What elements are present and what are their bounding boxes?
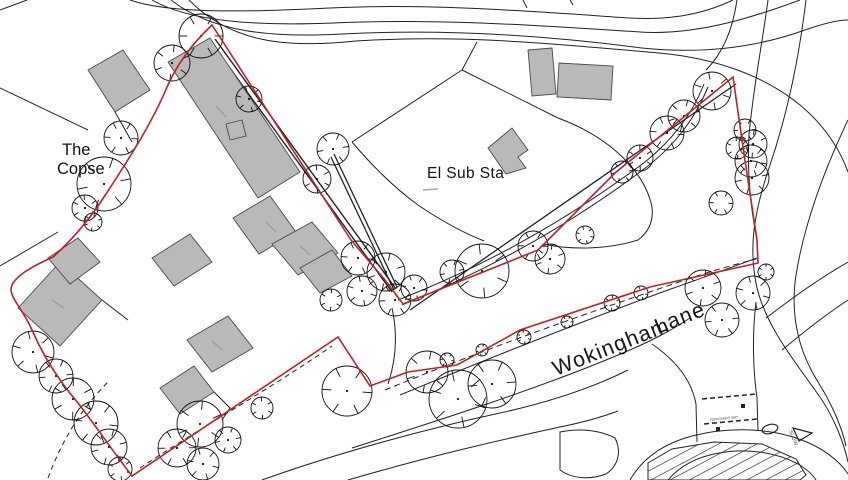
tree-symbol — [736, 276, 770, 310]
tree-symbol — [758, 264, 774, 280]
tree-symbol — [91, 429, 127, 465]
strip-fence-3 — [410, 84, 736, 310]
road-markings — [648, 394, 812, 480]
tree-symbol — [347, 276, 377, 306]
building-copse-1 — [18, 262, 102, 346]
ne-arm-edge-1 — [766, 262, 848, 318]
building-copse-2 — [152, 234, 212, 286]
tree-symbol — [320, 289, 342, 311]
site-plan-canvas[interactable]: The Copse El Sub Sta Wokingham Lane PEPP… — [0, 0, 848, 480]
tree-symbol — [705, 303, 739, 337]
side-road-east-edge — [753, 302, 758, 430]
building-ne-1 — [528, 48, 556, 96]
top-road-edge-2 — [152, 0, 800, 32]
field-corner-tie — [462, 42, 477, 70]
building-small-nw — [88, 50, 150, 112]
tree-symbol — [561, 316, 573, 328]
lane-north-kerb — [400, 258, 757, 395]
site-plan-svg: The Copse El Sub Sta Wokingham Lane PEPP… — [0, 0, 848, 480]
tree-symbol — [52, 378, 94, 420]
crossing-stud — [716, 427, 720, 431]
tree-symbol — [251, 397, 273, 419]
label-the-copse-line1: The — [62, 141, 90, 159]
tree-symbol — [709, 191, 733, 215]
label-slow-marking: SLOW — [787, 430, 799, 447]
substation-smudge — [423, 189, 438, 190]
building-copse-4 — [160, 366, 214, 414]
east-road-sweep-2 — [794, 120, 848, 446]
copse-plot-line-3 — [102, 300, 128, 320]
corner-fragment — [0, 0, 27, 10]
tree-symbol — [576, 226, 594, 244]
field-nw-edge — [352, 70, 462, 142]
building-copse-3 — [187, 316, 253, 372]
copse-plot-line-2 — [115, 112, 132, 142]
tree-symbol — [215, 427, 241, 453]
tree-symbol — [12, 331, 54, 373]
crossing-dash-1 — [702, 394, 756, 399]
side-road-west-edge — [652, 344, 697, 442]
left-plot-line — [0, 88, 88, 130]
building-main-long — [168, 38, 300, 198]
building-ne-2 — [557, 63, 613, 100]
label-the-copse-line2: Copse — [57, 160, 105, 178]
tree-symbol — [187, 448, 219, 480]
tree-symbol — [735, 161, 769, 195]
copse-plot-line-1 — [0, 232, 58, 266]
verge-curve-2 — [348, 411, 618, 480]
label-lane: Lane — [651, 297, 709, 339]
tree-symbol — [104, 121, 138, 155]
tree-symbol — [322, 366, 372, 416]
cluster-lane-connector — [388, 308, 395, 384]
plot-tick-1 — [523, 0, 527, 8]
crossing-stud — [741, 404, 745, 408]
label-el-sub-sta: El Sub Sta — [427, 165, 504, 182]
tree-symbol — [367, 253, 405, 291]
ne-arm-edge-2 — [782, 300, 848, 350]
substation-fence-arc — [558, 118, 652, 240]
east-road-sweep — [753, 0, 848, 462]
strip-fence-1 — [398, 84, 704, 300]
traffic-island-ellipse — [761, 423, 779, 436]
field-south-edge — [548, 240, 638, 248]
tree-symbol — [39, 359, 73, 393]
plot-tick-2 — [570, 0, 573, 5]
tree-symbol — [517, 330, 531, 344]
field-sw-edge — [352, 142, 484, 241]
tree-symbol — [429, 370, 487, 428]
kerb-island-outline — [560, 430, 618, 478]
north-road-west-edge — [706, 0, 737, 70]
label-side-road-name: PEPPERMINT WAY — [710, 415, 740, 422]
strip-fence-2 — [402, 87, 708, 305]
building-small-sq — [226, 120, 246, 140]
tree-symbol — [455, 244, 509, 298]
top-road-edge-3 — [171, 0, 848, 50]
roundabout-island-hatched — [648, 442, 806, 480]
top-road-edge-1 — [130, 0, 733, 19]
